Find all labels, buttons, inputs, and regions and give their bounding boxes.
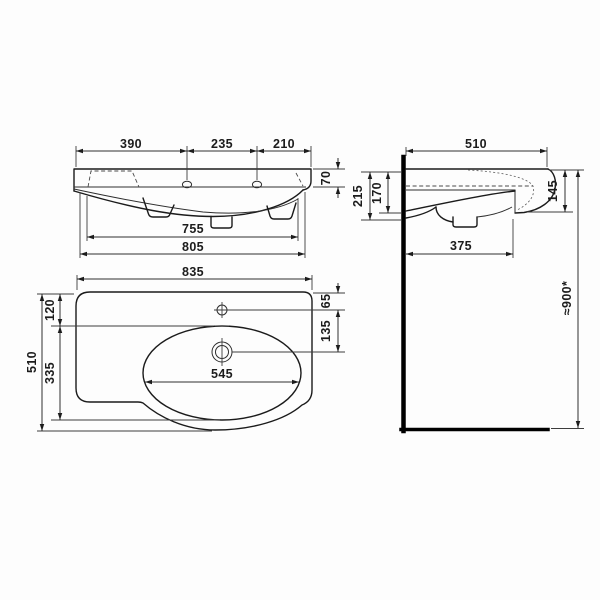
dim-label-145: 145 [546,180,560,202]
dim-label-390: 390 [120,137,142,151]
dim-label-210: 210 [273,137,295,151]
top-view-dimensions: 835 510 120 335 545 65 135 [25,265,345,431]
dim-label-835: 835 [182,265,204,279]
side-view: 510 215 170 145 ≈900* 375 [351,137,584,431]
drain-center-marks [215,326,229,366]
dim-label-65: 65 [319,294,333,309]
dim-label-135: 135 [319,320,333,342]
side-bowl-underside [406,191,515,211]
side-view-dimensions: 510 215 170 145 ≈900* 375 [351,137,584,429]
side-lower-edge [406,207,436,218]
dim-label-375: 375 [450,239,472,253]
front-view: 390 235 210 70 755 805 [74,137,345,258]
side-stub-shelf [477,207,512,217]
rim-profile [74,169,311,191]
side-view-outline [401,157,555,431]
technical-drawing-sheet: 390 235 210 70 755 805 [0,0,600,600]
dim-label-235: 235 [211,137,233,151]
side-drain-stub [453,217,477,227]
dim-label-510-depth: 510 [25,351,39,373]
hidden-bracket-left [88,171,139,187]
front-view-outline [74,169,311,228]
basin-body-outline [76,292,312,430]
faucet-center-marks [214,302,230,318]
right-bracket [267,203,296,219]
dim-label-170: 170 [370,182,384,204]
dim-label-900: ≈900* [560,281,574,316]
dim-label-70: 70 [319,171,333,186]
drain-stub [211,217,232,229]
dim-label-755: 755 [182,222,204,236]
dim-label-335: 335 [43,362,57,384]
dim-label-510: 510 [465,137,487,151]
top-view-outline [76,292,312,430]
side-bracket-curve [436,207,453,222]
dim-label-215: 215 [351,185,365,207]
dim-label-805: 805 [182,240,204,254]
hidden-bracket-right [296,173,303,186]
extension-lines-left [37,294,220,431]
top-view: 835 510 120 335 545 65 135 [25,265,345,431]
dim-label-545: 545 [211,367,233,381]
washbasin-dimension-diagram: 390 235 210 70 755 805 [0,0,600,600]
dim-label-120: 120 [43,299,57,321]
